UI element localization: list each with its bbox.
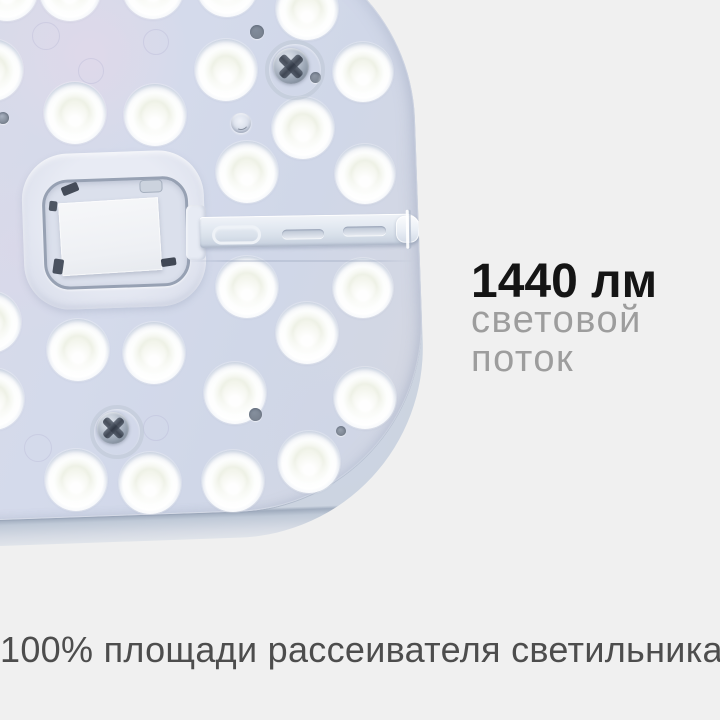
panel-seam-line (185, 260, 415, 262)
module-clip-mark (52, 258, 64, 274)
led-lens (276, 0, 338, 40)
panel-tint (240, 340, 420, 520)
led-lens (333, 258, 393, 318)
connector-arm-slot (282, 229, 324, 239)
led-lens (276, 302, 338, 364)
panel-hole (336, 426, 346, 436)
mold-ring (143, 415, 169, 441)
led-lens (333, 42, 393, 102)
mold-ring (32, 22, 60, 50)
mold-ring (78, 58, 104, 84)
led-lens (47, 319, 109, 381)
led-lens (195, 39, 257, 101)
mold-ring (24, 434, 52, 462)
led-lens (45, 449, 107, 511)
caption-diffuser-area: 100% площади рассеивателя светильника (0, 629, 720, 671)
led-lens (334, 367, 396, 429)
subheadline-line2: поток (471, 338, 574, 380)
connector-arm-rim-highlight (406, 210, 410, 249)
led-lens (335, 144, 395, 204)
marketing-banner: 1440 лм световой поток 100% площади расс… (0, 0, 720, 720)
mold-ring (143, 29, 169, 55)
screw-head-icon (97, 412, 129, 444)
driver-module-label (58, 197, 162, 276)
led-module-photo (0, 0, 429, 553)
led-lens (119, 452, 181, 514)
led-lens (202, 450, 264, 512)
led-lens (272, 97, 334, 159)
driver-module (20, 149, 207, 311)
panel-hole (250, 25, 264, 39)
connector-arm-dark-slot (215, 228, 258, 242)
panel-hole (0, 112, 9, 124)
led-lens (196, 0, 258, 17)
screw-head-icon (273, 48, 309, 84)
connector-arm (200, 214, 420, 248)
module-clip-mark (49, 201, 58, 212)
subheadline-line1: световой (471, 299, 642, 341)
led-lens (124, 84, 186, 146)
subheadline-luminous-flux: световой поток (471, 301, 642, 379)
glue-dot (231, 113, 251, 133)
led-lens (0, 368, 24, 430)
module-clip-tab (139, 179, 162, 193)
led-lens (123, 322, 185, 384)
led-lens (216, 256, 278, 318)
led-lens (278, 431, 340, 493)
led-lens (44, 82, 106, 144)
panel-hole (249, 408, 262, 421)
led-lens (216, 141, 278, 203)
panel-inner (0, 0, 419, 542)
connector-arm-slot (343, 226, 386, 236)
